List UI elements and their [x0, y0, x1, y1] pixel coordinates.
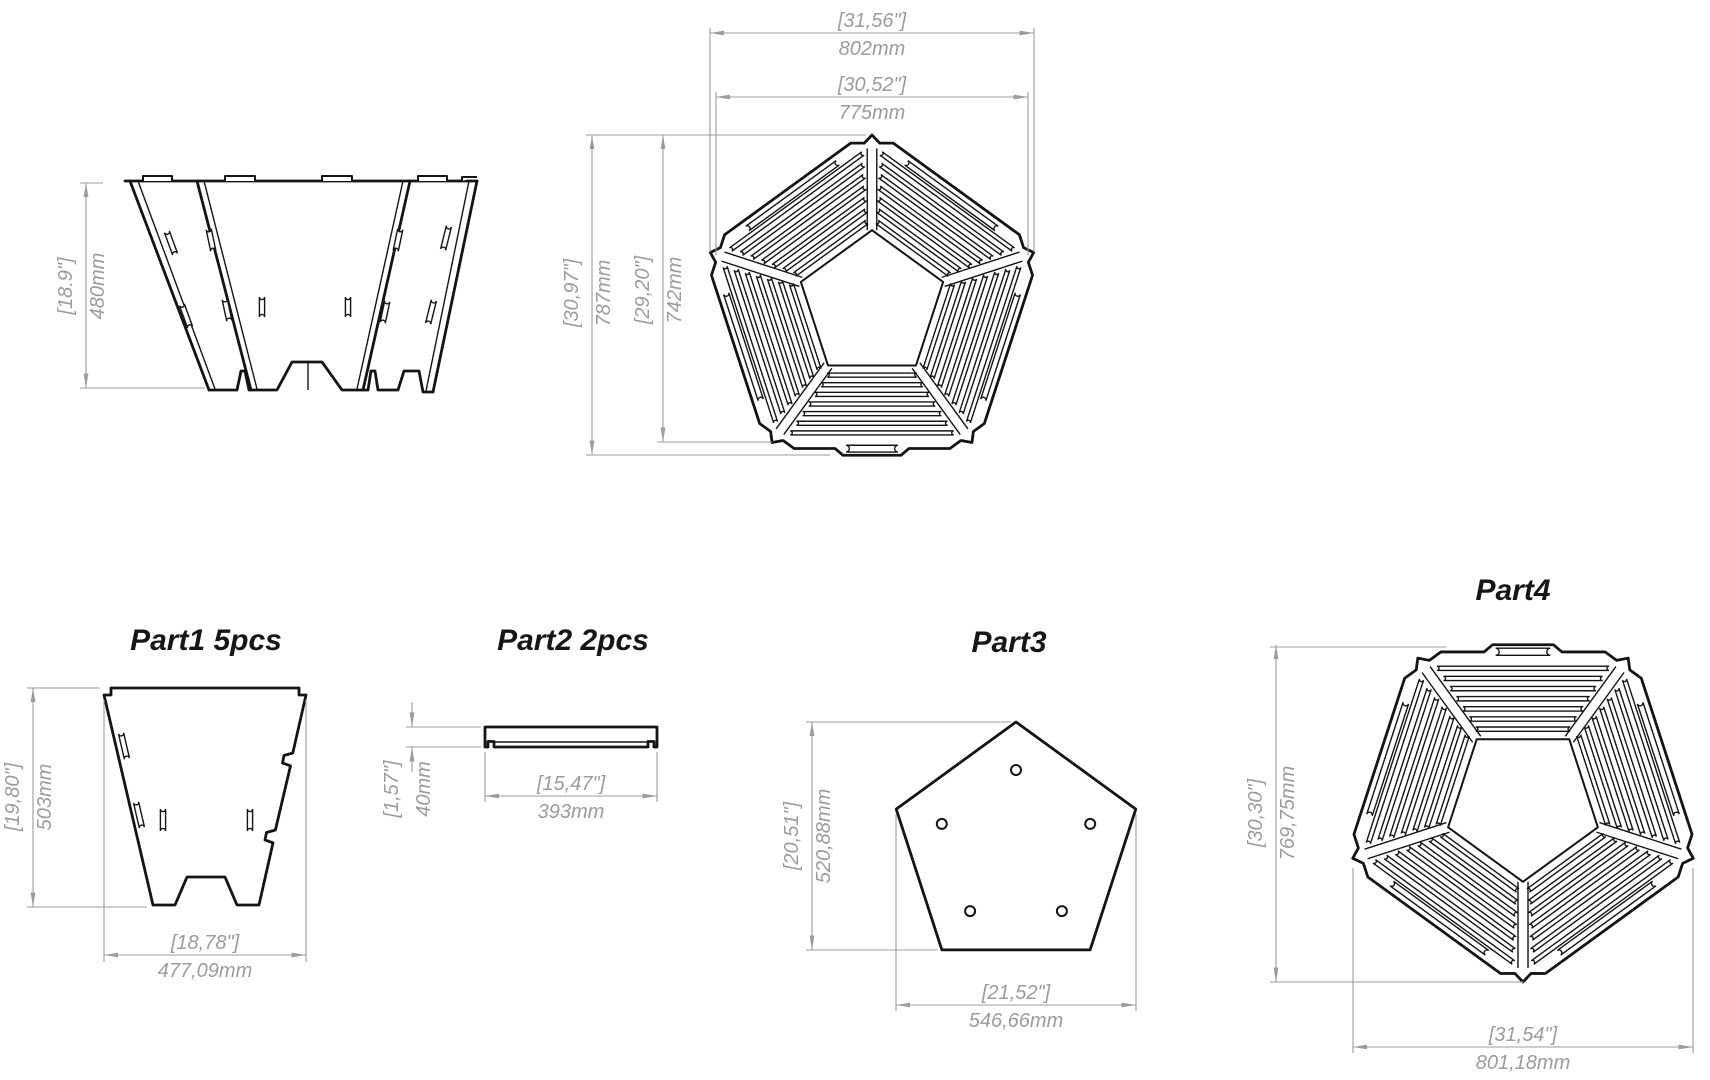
top-inner-width-inches: [30,52"]: [837, 74, 907, 96]
part2-height-mm: 40mm: [413, 761, 435, 817]
top-view: [31,56"] 802mm [30,52"] 775mm [30,97"] 7…: [561, 10, 1034, 455]
side-panel-edges: [130, 181, 477, 392]
side-view: [18.9"] 480mm: [55, 176, 477, 392]
grill-vent-slot: [803, 412, 942, 416]
grill-vent-slot: [827, 373, 917, 377]
grill-vent-slot: [1463, 707, 1583, 711]
side-lock-slot: [164, 231, 177, 255]
part1-height-mm: 503mm: [34, 764, 56, 831]
part3-hole: [1057, 906, 1067, 916]
side-panel-inner-edges: [138, 181, 469, 391]
grill-vent-slot: [809, 402, 936, 406]
technical-drawing-canvas: [18.9"] 480mm [31,56"] 802mm [30,52"] 77…: [0, 0, 1710, 1080]
part4-height-inches: [30,30"]: [1245, 778, 1267, 848]
part3-hole: [1011, 765, 1021, 775]
grill-vent-slot: [821, 383, 923, 387]
part4-height-mm: 769,75mm: [1277, 766, 1299, 861]
grill-vent-slot: [1456, 697, 1589, 701]
side-height-mm: 480mm: [87, 253, 109, 320]
grill-vent-slot: [790, 431, 954, 435]
top-outer-width-inches: [31,56"]: [837, 10, 907, 32]
grill-vent-slot: [1476, 727, 1570, 731]
part2-height-extensions: [406, 727, 481, 747]
side-view-slots: [164, 226, 451, 328]
part3-hole: [965, 906, 975, 916]
side-lock-slot: [206, 229, 216, 252]
part4-width-inches: [31,54"]: [1488, 1024, 1558, 1046]
part1-height-inches: [19,80"]: [2, 762, 24, 832]
part1-width-inches: [18,78"]: [170, 932, 240, 954]
part1-outline: [104, 688, 306, 905]
grill-vent-slot: [1469, 717, 1576, 721]
part3-hole: [937, 819, 947, 829]
part3-height-inches: [20,51"]: [781, 801, 803, 871]
part3-label: Part3: [971, 626, 1046, 659]
grill-vent-slot: [796, 421, 947, 425]
part4-view: Part4 [30,30"] 769,75mm [31,54"] 801,18m…: [1245, 574, 1693, 1074]
top-inner-height-inches: [29,20"]: [632, 255, 654, 325]
grill-vent-slot: [1450, 686, 1596, 690]
grill-handle-slot: [1496, 648, 1551, 655]
top-inner-width-mm: 775mm: [839, 102, 906, 124]
side-bottom-feet: [209, 362, 433, 392]
side-lock-slot: [441, 226, 452, 251]
grill-vent-slot: [815, 392, 929, 396]
part1-view: Part1 5pcs [19,80"] 503mm [18,78"] 477,0…: [2, 624, 306, 982]
top-outer-height-inches: [30,97"]: [561, 258, 583, 328]
part4-drawing: [1353, 645, 1693, 982]
part2-width-inches: [15,47"]: [536, 773, 606, 795]
top-inner-height-mm: 742mm: [664, 257, 686, 324]
part3-drawing: [896, 722, 1136, 950]
side-lock-slot: [426, 300, 437, 325]
side-height-inches: [18.9"]: [55, 257, 77, 316]
part3-width-inches: [21,52"]: [981, 982, 1051, 1004]
side-view-drawing: [125, 176, 477, 392]
part3-width-mm: 546,66mm: [969, 1010, 1064, 1032]
side-lock-slot: [259, 297, 264, 317]
top-outer-width-mm: 802mm: [839, 38, 906, 60]
top-outer-height-mm: 787mm: [593, 260, 615, 327]
part2-view: Part2 2pcs [1,57"] 40mm [15,47"] 393mm: [381, 624, 657, 823]
grill-handle-slot: [846, 445, 898, 452]
part4-width-mm: 801,18mm: [1476, 1052, 1571, 1074]
part3-hole: [1085, 819, 1095, 829]
part3-view: Part3 [20,51"] 520,88mm [21,52"] 546,66m…: [781, 626, 1136, 1032]
grill-vent-slot: [1437, 666, 1609, 670]
side-lock-slot: [345, 297, 350, 317]
part1-lock-slot: [160, 809, 165, 831]
part1-label: Part1 5pcs: [130, 624, 282, 657]
grill-vent-slot: [1443, 676, 1602, 680]
part1-lock-slot: [247, 809, 252, 831]
part2-drawing: [485, 727, 657, 747]
drawing-sheet: [18.9"] 480mm [31,56"] 802mm [30,52"] 77…: [0, 0, 1710, 1080]
top-view-drawing: [710, 135, 1033, 455]
side-lock-slot: [393, 229, 403, 252]
part2-width-mm: 393mm: [538, 801, 605, 823]
part4-label: Part4: [1475, 574, 1550, 607]
part2-label: Part2 2pcs: [497, 624, 649, 657]
part3-height-mm: 520,88mm: [813, 789, 835, 884]
part1-width-mm: 477,09mm: [158, 960, 253, 982]
part2-outline: [485, 727, 657, 747]
part2-height-inches: [1,57"]: [381, 760, 403, 819]
part1-drawing: [104, 688, 306, 905]
part3-pentagon-outline: [896, 722, 1136, 950]
